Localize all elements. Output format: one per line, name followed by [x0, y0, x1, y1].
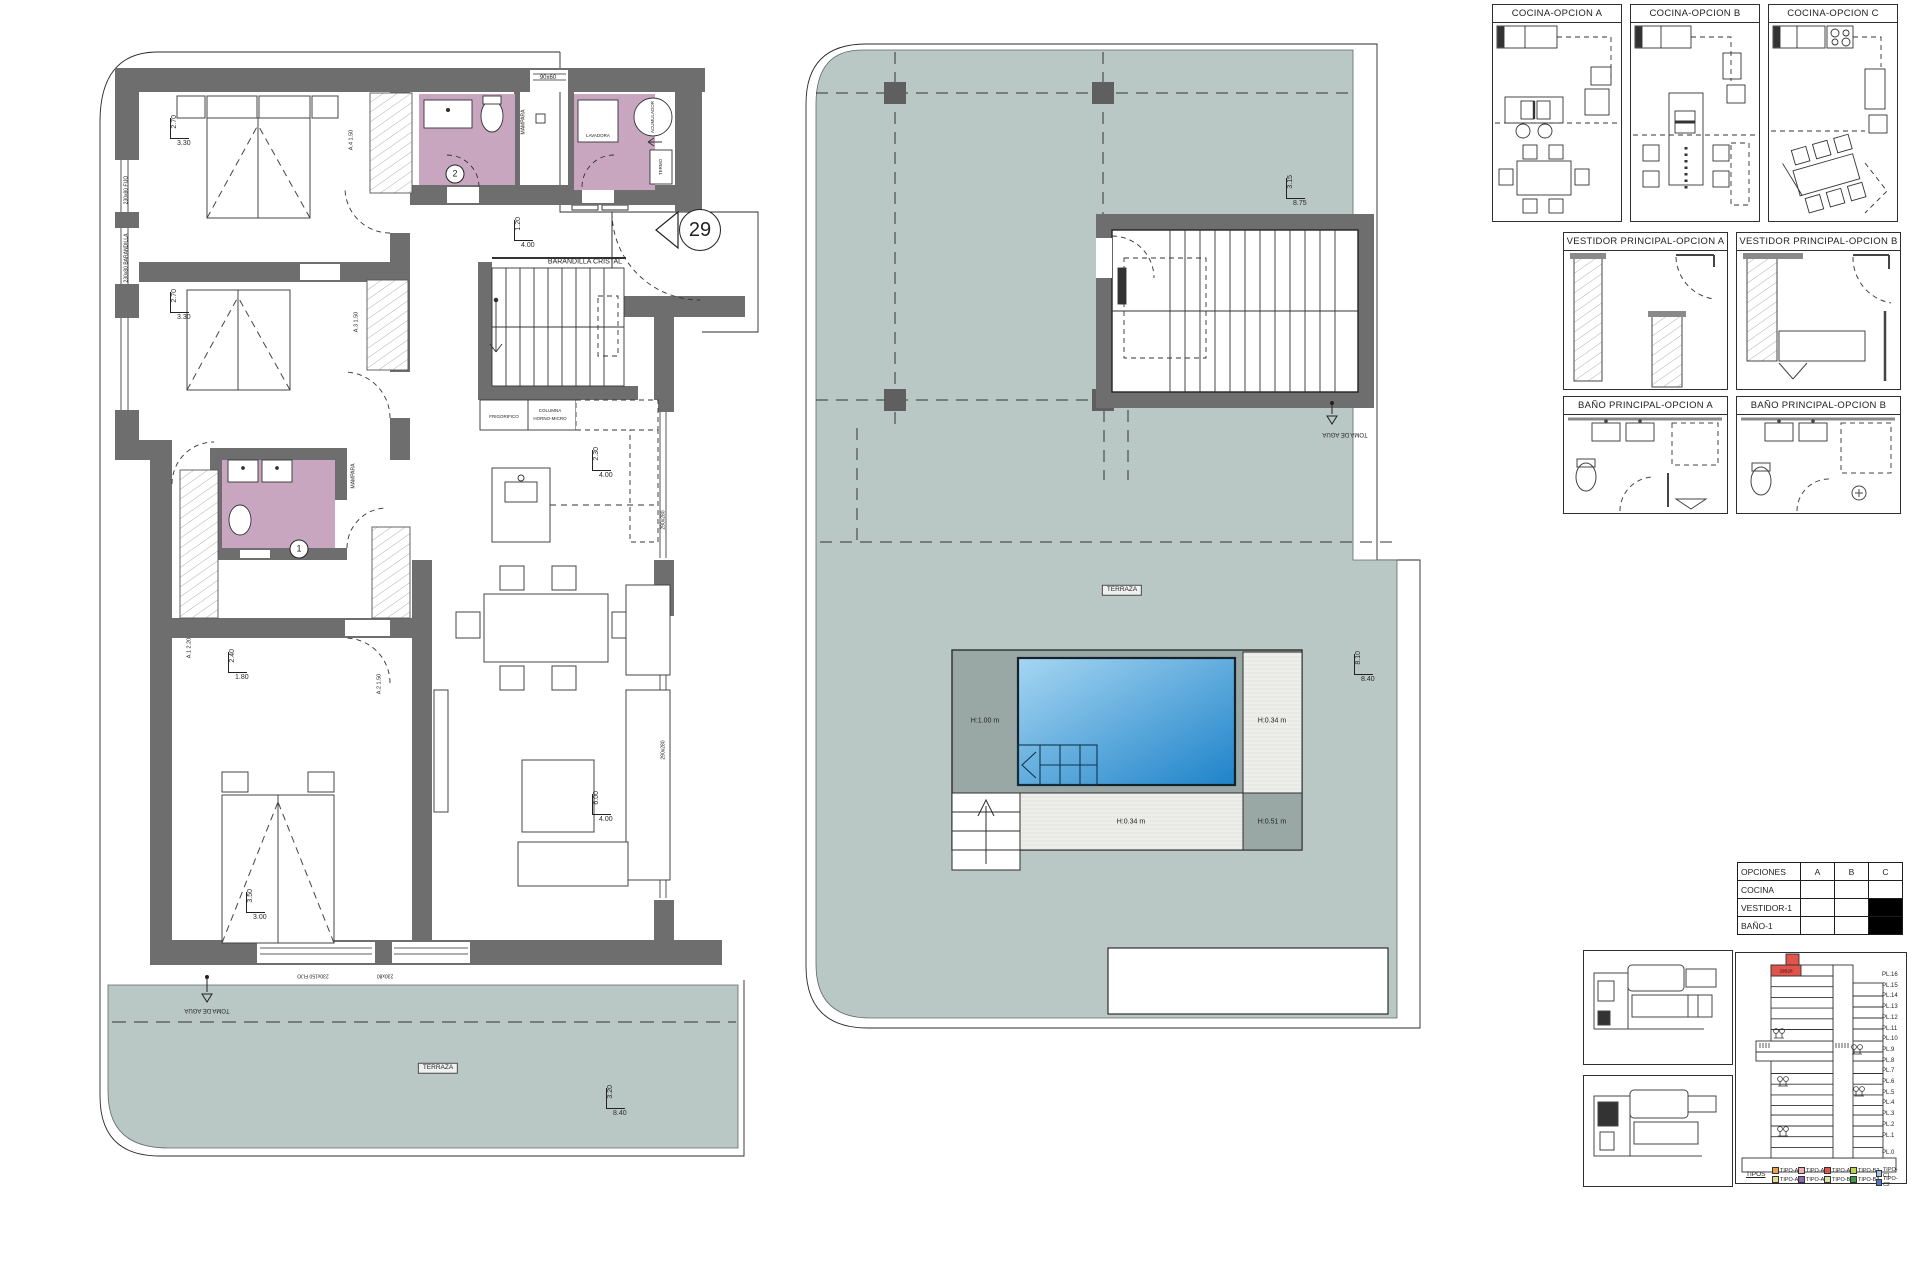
floor-label-pl-0: PL.0: [1882, 1150, 1894, 1156]
bano-b-sketch: [1737, 415, 1899, 513]
legend-item-tipo-b1: TIPO-B1: [1824, 1176, 1853, 1183]
panel-title: BAÑO PRINCIPAL-OPCION B: [1737, 397, 1900, 415]
panel-title: VESTIDOR PRINCIPAL-OPCION B: [1737, 233, 1900, 251]
options-table-header-c: C: [1869, 863, 1903, 881]
floor-label-pl-1: PL.1: [1882, 1133, 1894, 1139]
cocina-b-sketch: [1631, 23, 1758, 221]
panel-title: BAÑO PRINCIPAL-OPCION A: [1564, 397, 1727, 415]
legend-swatch: [1772, 1176, 1779, 1183]
panel-title: COCINA-OPCION C: [1769, 5, 1897, 23]
legend-swatch: [1798, 1176, 1805, 1183]
keyplan-upper: [1583, 950, 1733, 1065]
legend-swatch: [1772, 1167, 1779, 1174]
options-cell-ba-o-1-a: [1801, 917, 1835, 935]
legend-swatch: [1824, 1176, 1831, 1183]
options-table-row-ba-o-1: BAÑO-1: [1738, 917, 1801, 935]
legend-item-tipo-a4: TIPO-A4: [1798, 1176, 1827, 1183]
options-table-row-cocina: COCINA: [1738, 881, 1801, 899]
legend-swatch: [1850, 1167, 1857, 1174]
floor-label-pl-16: PL.16: [1882, 972, 1898, 978]
legend-swatch: [1824, 1167, 1831, 1174]
panel-cocina-option-a: COCINA-OPCION A: [1492, 4, 1622, 222]
options-cell-vestidor-1-c: [1869, 899, 1903, 917]
panel-vestidor-option-a: VESTIDOR PRINCIPAL-OPCION A: [1563, 232, 1728, 390]
highlighted-unit-label: 29B28: [1779, 969, 1792, 974]
vestidor-b-sketch: [1737, 251, 1899, 389]
legend-swatch: [1850, 1176, 1857, 1183]
keyplan-upper-sketch: [1584, 951, 1729, 1061]
options-table-header-opciones: OPCIONES: [1738, 863, 1801, 881]
floor-label-pl-10: PL.10: [1882, 1036, 1898, 1042]
legend-item-tipo-a3: TIPO-A3: [1798, 1167, 1827, 1174]
legend-item-tipo-a1: TIPO-A1: [1772, 1167, 1801, 1174]
floor-label-pl-7: PL.7: [1882, 1068, 1894, 1074]
legend-title: TIPOS: [1746, 1171, 1766, 1178]
building-sketch: [1736, 953, 1903, 1180]
legend-swatch: [1876, 1179, 1882, 1186]
panel-bano-option-b: BAÑO PRINCIPAL-OPCION B: [1736, 396, 1901, 514]
options-matrix-table: OPCIONESABCCOCINAVESTIDOR-1BAÑO-1: [1737, 862, 1903, 935]
plan2-pool: [952, 650, 1302, 870]
floor-label-pl-15: PL.15: [1882, 983, 1898, 989]
panel-vestidor-option-b: VESTIDOR PRINCIPAL-OPCION B: [1736, 232, 1901, 390]
floor-label-pl-5: PL.5: [1882, 1090, 1894, 1096]
cocina-a-sketch: [1493, 23, 1620, 221]
panel-cocina-option-c: COCINA-OPCION C: [1768, 4, 1898, 222]
panel-title: COCINA-OPCION A: [1493, 5, 1621, 23]
options-cell-cocina-a: [1801, 881, 1835, 899]
keyplan-lower-sketch: [1584, 1076, 1729, 1183]
options-cell-vestidor-1-b: [1835, 899, 1869, 917]
panel-title: COCINA-OPCION B: [1631, 5, 1759, 23]
plan1-kitchen: [480, 400, 658, 542]
options-cell-cocina-b: [1835, 881, 1869, 899]
plan2-terrace: [816, 50, 1397, 1018]
legend-item-tipo-b3: TIPO-B3: [1850, 1176, 1879, 1183]
cocina-c-sketch: [1769, 23, 1896, 221]
floor-label-pl-6: PL.6: [1882, 1079, 1894, 1085]
plan1-stair: [490, 258, 626, 386]
floor-plan-sheet: BARANDILLA CRISTAL292190x60LAVADORAACUMU…: [0, 0, 1920, 1280]
floor-label-pl-13: PL.13: [1882, 1004, 1898, 1010]
legend-item-tipo-c2: TIPO-C2: [1876, 1176, 1900, 1188]
plan2-planter: [1108, 948, 1388, 1014]
plan2-stair-core: [1096, 214, 1374, 408]
legend-swatch: [1798, 1167, 1805, 1174]
legend-item-tipo-a5: TIPO-A5: [1824, 1167, 1853, 1174]
legend-item-tipo-b2: TIPO-B2: [1850, 1167, 1879, 1174]
options-cell-ba-o-1-c: [1869, 917, 1903, 935]
floor-label-pl-11: PL.11: [1882, 1026, 1897, 1032]
floor-label-pl-8: PL.8: [1882, 1058, 1894, 1064]
options-cell-vestidor-1-a: [1801, 899, 1835, 917]
keyplan-lower: [1583, 1075, 1733, 1187]
panel-bano-option-a: BAÑO PRINCIPAL-OPCION A: [1563, 396, 1728, 514]
options-table-header-a: A: [1801, 863, 1835, 881]
legend-item-tipo-a2: TIPO-A2: [1772, 1176, 1801, 1183]
options-table-header-b: B: [1835, 863, 1869, 881]
options-cell-ba-o-1-b: [1835, 917, 1869, 935]
panel-cocina-option-b: COCINA-OPCION B: [1630, 4, 1760, 222]
floor-label-pl-2: PL.2: [1882, 1122, 1894, 1128]
vestidor-a-sketch: [1564, 251, 1726, 389]
floor-label-pl-12: PL.12: [1882, 1015, 1898, 1021]
building-stack-diagram: 29B28 PL.16PL.15PL.14PL.13PL.12PL.11PL.1…: [1735, 952, 1907, 1184]
options-cell-cocina-c: [1869, 881, 1903, 899]
legend-label: TIPO-C2: [1883, 1176, 1900, 1188]
floor-label-pl-14: PL.14: [1882, 993, 1898, 999]
bano-a-sketch: [1564, 415, 1726, 513]
options-table-row-vestidor-1: VESTIDOR-1: [1738, 899, 1801, 917]
floor-label-pl-3: PL.3: [1882, 1111, 1894, 1117]
panel-title: VESTIDOR PRINCIPAL-OPCION A: [1564, 233, 1727, 251]
floor-label-pl-4: PL.4: [1882, 1100, 1894, 1106]
floor-label-pl-9: PL.9: [1882, 1047, 1894, 1053]
plan1-dining: [456, 566, 636, 690]
